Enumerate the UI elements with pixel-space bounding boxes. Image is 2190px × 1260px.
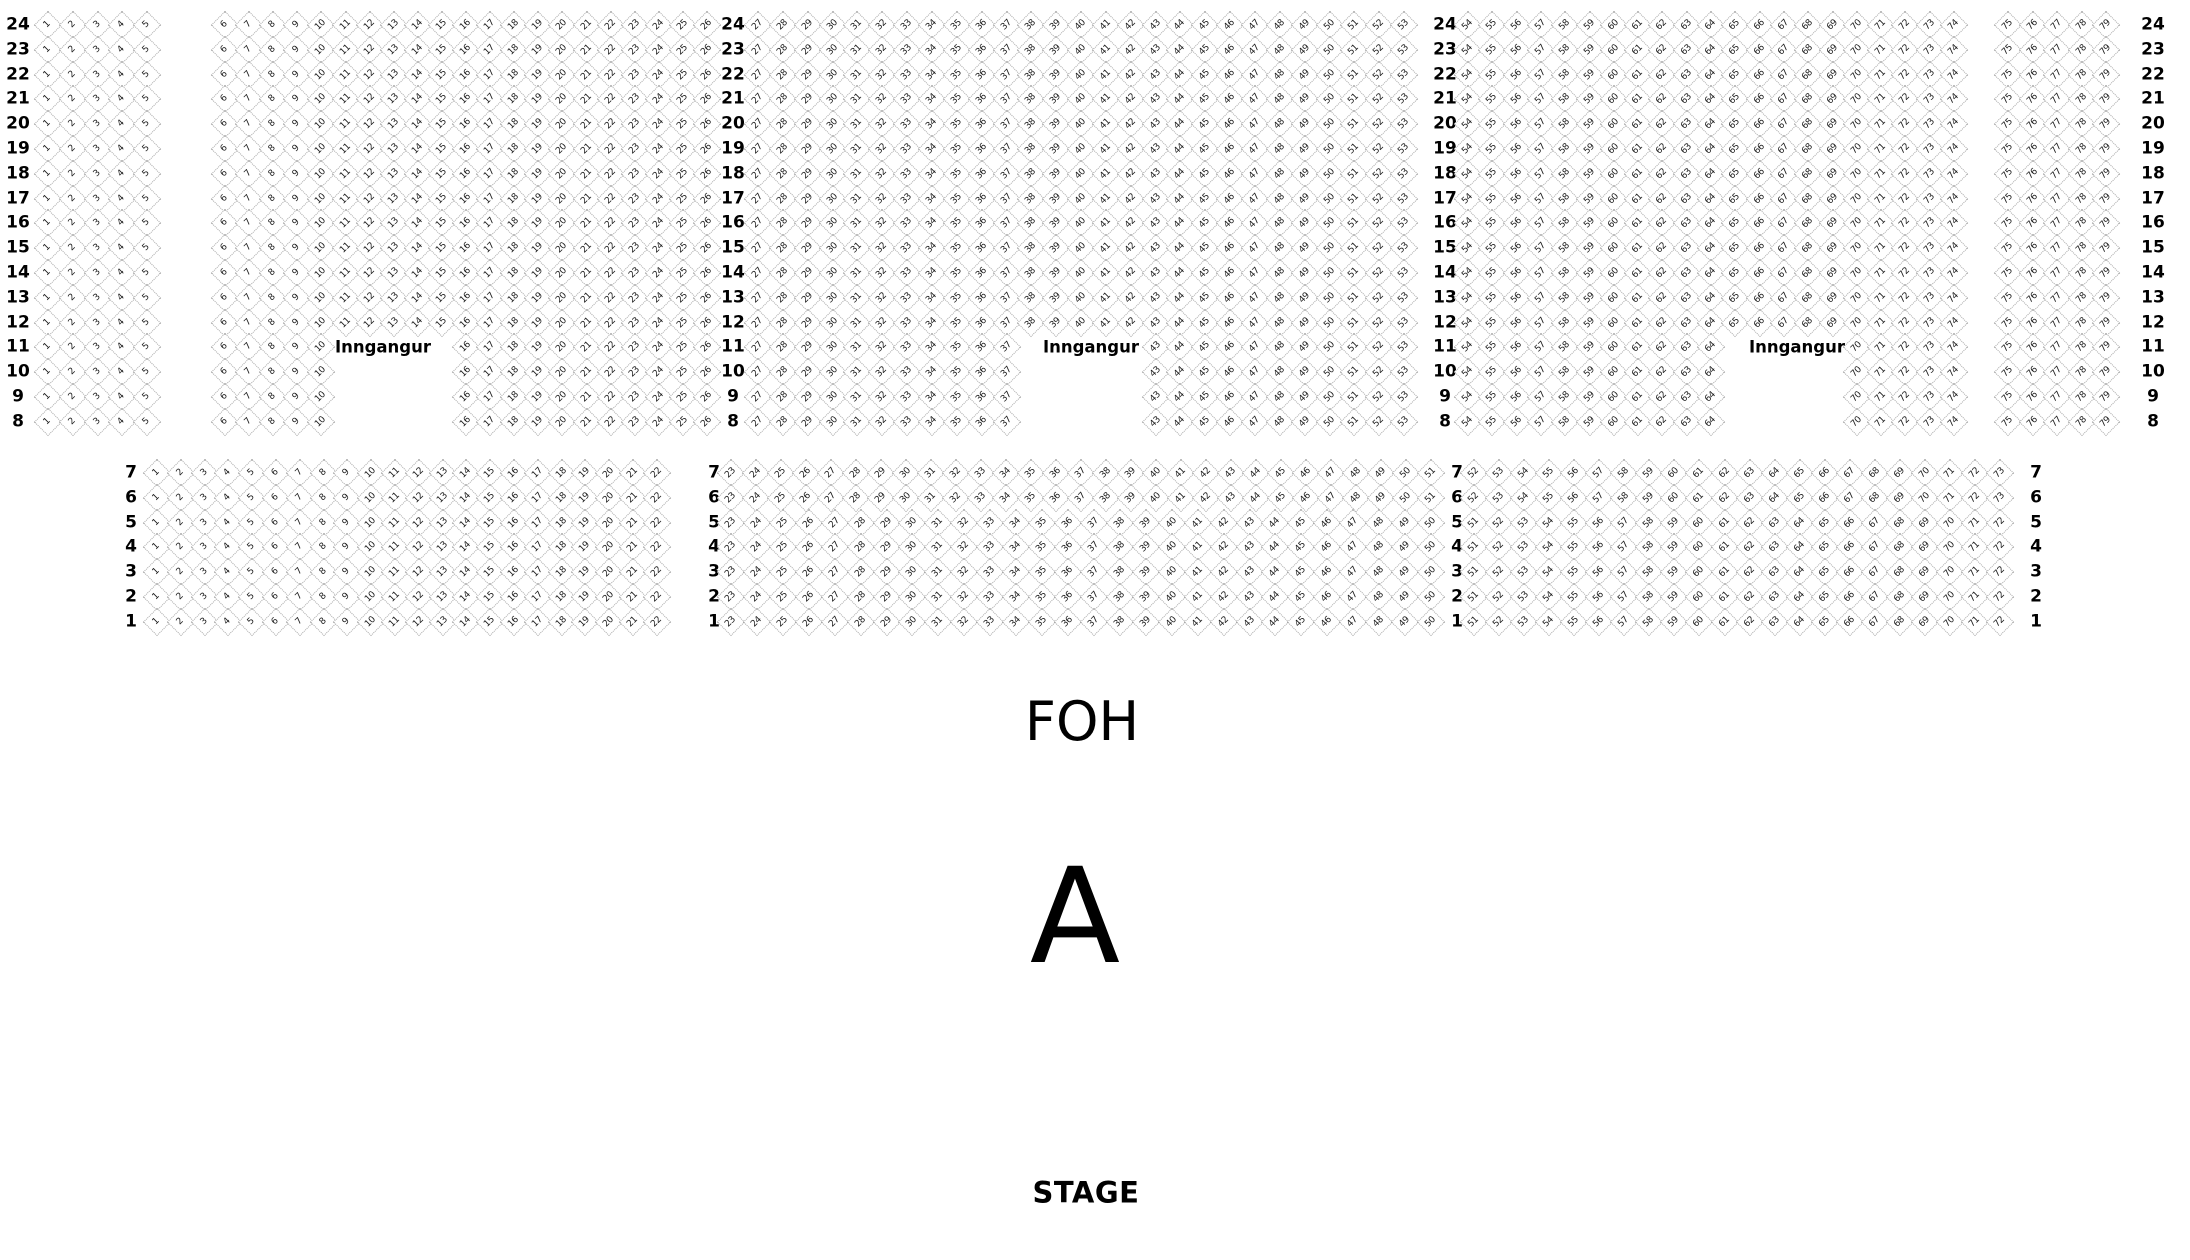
seat-number: 59 bbox=[1583, 415, 1597, 429]
seat-number: 42 bbox=[1217, 615, 1231, 629]
seat[interactable]: 22 bbox=[643, 608, 671, 636]
seat-number: 79 bbox=[2099, 266, 2113, 280]
seat[interactable]: 79 bbox=[2092, 160, 2120, 188]
seat-number: 11 bbox=[388, 516, 402, 530]
seat-number: 72 bbox=[1993, 590, 2007, 604]
seat[interactable]: 79 bbox=[2092, 408, 2120, 436]
seat-number: 72 bbox=[1899, 390, 1913, 404]
seat-number: 70 bbox=[1850, 167, 1864, 181]
seat[interactable]: 32 bbox=[950, 608, 978, 636]
seat[interactable]: 26 bbox=[693, 408, 721, 436]
seat-number: 28 bbox=[854, 516, 868, 530]
seat[interactable]: 37 bbox=[1080, 608, 1108, 636]
seat[interactable]: 32 bbox=[950, 583, 978, 611]
seat[interactable]: 31 bbox=[924, 608, 952, 636]
seat[interactable]: 51 bbox=[1417, 484, 1445, 512]
seat[interactable]: 29 bbox=[872, 608, 900, 636]
seat[interactable]: 26 bbox=[693, 160, 721, 188]
seat-number: 46 bbox=[1223, 43, 1237, 57]
seat[interactable]: 44 bbox=[1261, 583, 1289, 611]
seat[interactable]: 53 bbox=[1390, 160, 1418, 188]
seat-number: 35 bbox=[950, 415, 964, 429]
seat-number: 21 bbox=[580, 93, 594, 107]
seat-number: 36 bbox=[975, 18, 989, 32]
seat-number: 5 bbox=[142, 45, 152, 55]
seat[interactable]: 5 bbox=[133, 160, 161, 188]
seat-number: 57 bbox=[1534, 68, 1548, 82]
seat-number: 53 bbox=[1397, 266, 1411, 280]
seat-number: 31 bbox=[851, 43, 865, 57]
seat-number: 31 bbox=[851, 390, 865, 404]
seat-number: 51 bbox=[1467, 590, 1481, 604]
seat-number: 15 bbox=[483, 516, 497, 530]
seat-number: 46 bbox=[1320, 516, 1334, 530]
seat-number: 46 bbox=[1320, 541, 1334, 555]
seat-number: 42 bbox=[1124, 241, 1138, 255]
seat-number: 28 bbox=[776, 167, 790, 181]
seat-number: 63 bbox=[1680, 291, 1694, 305]
seat-number: 9 bbox=[292, 20, 302, 30]
seat[interactable]: 60 bbox=[1685, 533, 1713, 561]
seat[interactable]: 44 bbox=[1261, 558, 1289, 586]
seat[interactable]: 72 bbox=[1986, 608, 2014, 636]
seat-number: 72 bbox=[1993, 615, 2007, 629]
seat-number: 50 bbox=[1323, 390, 1337, 404]
seat-number: 18 bbox=[507, 142, 521, 156]
seat[interactable]: 41 bbox=[1184, 608, 1212, 636]
seat-number: 3 bbox=[92, 268, 102, 278]
row-label: 19 bbox=[721, 141, 745, 158]
row-label: 22 bbox=[2141, 66, 2165, 83]
seat-number: 45 bbox=[1198, 117, 1212, 131]
seat-number: 47 bbox=[1324, 491, 1338, 505]
seat[interactable]: 53 bbox=[1390, 11, 1418, 39]
seat-number: 21 bbox=[626, 466, 640, 480]
seat-number: 67 bbox=[1777, 192, 1791, 206]
seat[interactable]: 60 bbox=[1685, 558, 1713, 586]
seat-number: 63 bbox=[1680, 18, 1694, 32]
seat-number: 27 bbox=[751, 142, 765, 156]
seat[interactable]: 49 bbox=[1291, 408, 1319, 436]
seat-number: 45 bbox=[1198, 217, 1212, 231]
seat-number: 61 bbox=[1631, 316, 1645, 330]
seat-number: 69 bbox=[1918, 565, 1932, 579]
seat-number: 32 bbox=[875, 43, 889, 57]
seat[interactable]: 47 bbox=[1339, 583, 1367, 611]
seat-number: 50 bbox=[1424, 516, 1438, 530]
seat[interactable]: 5 bbox=[133, 408, 161, 436]
seat-number: 41 bbox=[1191, 541, 1205, 555]
seat-number: 1 bbox=[43, 367, 53, 377]
seat-number: 33 bbox=[974, 466, 988, 480]
seat[interactable]: 2 bbox=[59, 408, 87, 436]
seat-number: 56 bbox=[1510, 291, 1524, 305]
seat-number: 17 bbox=[483, 341, 497, 355]
seat-number: 25 bbox=[774, 491, 788, 505]
seat-number: 6 bbox=[220, 392, 230, 402]
seat-number: 54 bbox=[1542, 541, 1556, 555]
seat[interactable]: 43 bbox=[1235, 608, 1263, 636]
seat-number: 6 bbox=[220, 119, 230, 129]
seat-number: 51 bbox=[1467, 516, 1481, 530]
seat-number: 4 bbox=[117, 45, 127, 55]
seat[interactable]: 29 bbox=[794, 408, 822, 436]
seat[interactable]: 10 bbox=[307, 408, 335, 436]
seat-number: 62 bbox=[1656, 266, 1670, 280]
seat-number: 44 bbox=[1174, 291, 1188, 305]
seat[interactable]: 45 bbox=[1287, 583, 1315, 611]
seat[interactable]: 61 bbox=[1685, 484, 1713, 512]
seat-number: 31 bbox=[924, 466, 938, 480]
seat-number: 9 bbox=[292, 417, 302, 427]
seat[interactable]: 30 bbox=[898, 583, 926, 611]
seat[interactable]: 27 bbox=[821, 608, 849, 636]
seat-number: 53 bbox=[1397, 68, 1411, 82]
seat-number: 23 bbox=[628, 241, 642, 255]
seat-number: 74 bbox=[1947, 390, 1961, 404]
seat-number: 5 bbox=[247, 567, 257, 577]
seat[interactable]: 53 bbox=[1390, 284, 1418, 312]
seat-number: 15 bbox=[435, 167, 449, 181]
seat[interactable]: 64 bbox=[1697, 408, 1725, 436]
seat[interactable]: 35 bbox=[1028, 583, 1056, 611]
seat-number: 18 bbox=[555, 491, 569, 505]
seat-number: 55 bbox=[1485, 18, 1499, 32]
seat-number: 27 bbox=[828, 516, 842, 530]
seat-number: 51 bbox=[1348, 18, 1362, 32]
seat-number: 74 bbox=[1947, 18, 1961, 32]
seat-number: 76 bbox=[2026, 291, 2040, 305]
seat-number: 11 bbox=[339, 266, 353, 280]
seat[interactable]: 53 bbox=[1390, 36, 1418, 64]
seat-number: 11 bbox=[339, 291, 353, 305]
seat-number: 43 bbox=[1243, 565, 1257, 579]
seat[interactable]: 42 bbox=[1209, 608, 1237, 636]
seat-number: 13 bbox=[436, 466, 450, 480]
seat-number: 74 bbox=[1947, 167, 1961, 181]
seat-number: 7 bbox=[295, 468, 305, 478]
seat[interactable]: 48 bbox=[1365, 608, 1393, 636]
seat-number: 21 bbox=[580, 192, 594, 206]
seat[interactable]: 53 bbox=[1390, 135, 1418, 163]
seat-number: 73 bbox=[1923, 43, 1937, 57]
seat[interactable]: 64 bbox=[1785, 608, 1813, 636]
seat[interactable]: 31 bbox=[924, 558, 952, 586]
seat[interactable]: 47 bbox=[1339, 608, 1367, 636]
seat-number: 57 bbox=[1617, 516, 1631, 530]
seat[interactable]: 23 bbox=[717, 608, 745, 636]
seat[interactable]: 39 bbox=[1132, 608, 1160, 636]
seat-number: 11 bbox=[339, 217, 353, 231]
seat[interactable]: 66 bbox=[1836, 608, 1864, 636]
seat[interactable]: 60 bbox=[1685, 608, 1713, 636]
seat[interactable]: 33 bbox=[976, 583, 1004, 611]
seat-number: 30 bbox=[826, 18, 840, 32]
row-label: 17 bbox=[2141, 190, 2165, 207]
seat-number: 50 bbox=[1323, 266, 1337, 280]
seat-number: 50 bbox=[1399, 491, 1413, 505]
seat-number: 68 bbox=[1868, 491, 1882, 505]
seat-number: 66 bbox=[1753, 217, 1767, 231]
seat-number: 34 bbox=[1009, 615, 1023, 629]
seat-number: 60 bbox=[1607, 316, 1621, 330]
seat-number: 64 bbox=[1704, 316, 1718, 330]
seat-number: 51 bbox=[1348, 390, 1362, 404]
seat-number: 16 bbox=[459, 241, 473, 255]
row-label: 20 bbox=[721, 116, 745, 133]
seat[interactable]: 49 bbox=[1391, 583, 1419, 611]
seat-number: 46 bbox=[1223, 167, 1237, 181]
seat-number: 68 bbox=[1868, 466, 1882, 480]
seat[interactable]: 26 bbox=[795, 608, 823, 636]
seat-number: 64 bbox=[1704, 217, 1718, 231]
seat-number: 36 bbox=[975, 415, 989, 429]
seat-number: 2 bbox=[68, 268, 78, 278]
seat[interactable]: 36 bbox=[967, 408, 995, 436]
seat-number: 16 bbox=[459, 291, 473, 305]
seat[interactable]: 34 bbox=[1002, 608, 1030, 636]
seat[interactable]: 65 bbox=[1811, 608, 1839, 636]
seat-number: 38 bbox=[1024, 117, 1038, 131]
seat[interactable]: 25 bbox=[769, 608, 797, 636]
seat-number: 68 bbox=[1801, 217, 1815, 231]
seat-number: 13 bbox=[387, 316, 401, 330]
seat[interactable]: 24 bbox=[743, 608, 771, 636]
seat[interactable]: 74 bbox=[1940, 36, 1968, 64]
seat-number: 68 bbox=[1893, 615, 1907, 629]
seat[interactable]: 10 bbox=[307, 383, 335, 411]
seat-number: 37 bbox=[1000, 415, 1014, 429]
seat[interactable]: 46 bbox=[1313, 608, 1341, 636]
seat-number: 15 bbox=[435, 266, 449, 280]
seat[interactable]: 33 bbox=[976, 558, 1004, 586]
seat-number: 66 bbox=[1753, 68, 1767, 82]
seat-number: 9 bbox=[292, 94, 302, 104]
seat-number: 34 bbox=[925, 217, 939, 231]
seat-number: 16 bbox=[459, 415, 473, 429]
seat-number: 12 bbox=[363, 93, 377, 107]
seat[interactable]: 63 bbox=[1760, 608, 1788, 636]
seat-number: 52 bbox=[1492, 541, 1506, 555]
seat-number: 37 bbox=[1000, 142, 1014, 156]
seat-number: 47 bbox=[1248, 18, 1262, 32]
seat-number: 28 bbox=[854, 565, 868, 579]
seat-number: 10 bbox=[364, 565, 378, 579]
seat[interactable]: 44 bbox=[1261, 608, 1289, 636]
seat-number: 63 bbox=[1680, 93, 1694, 107]
seat-number: 43 bbox=[1149, 18, 1163, 32]
seat-number: 29 bbox=[801, 217, 815, 231]
seat[interactable]: 45 bbox=[1287, 608, 1315, 636]
seat[interactable]: 40 bbox=[1158, 608, 1186, 636]
seat-number: 4 bbox=[223, 617, 233, 627]
seat[interactable]: 46 bbox=[1313, 558, 1341, 586]
seat-number: 77 bbox=[2050, 117, 2064, 131]
seat-number: 54 bbox=[1461, 266, 1475, 280]
seat[interactable]: 26 bbox=[693, 284, 721, 312]
seat-number: 4 bbox=[117, 392, 127, 402]
seat-number: 52 bbox=[1492, 516, 1506, 530]
seat-number: 36 bbox=[1049, 491, 1063, 505]
seat[interactable]: 72 bbox=[1986, 583, 2014, 611]
seat-number: 38 bbox=[1024, 142, 1038, 156]
seat-number: 63 bbox=[1768, 516, 1782, 530]
seat-number: 78 bbox=[2075, 167, 2089, 181]
seat-number: 12 bbox=[363, 117, 377, 131]
seat[interactable]: 73 bbox=[1986, 459, 2014, 487]
row-label: 1 bbox=[125, 613, 137, 630]
seat[interactable]: 37 bbox=[992, 408, 1020, 436]
seat-number: 4 bbox=[117, 243, 127, 253]
seat-number: 18 bbox=[507, 291, 521, 305]
seat-number: 67 bbox=[1868, 541, 1882, 555]
seat-number: 26 bbox=[802, 541, 816, 555]
seat[interactable]: 35 bbox=[1028, 608, 1056, 636]
seat[interactable]: 46 bbox=[1313, 583, 1341, 611]
seat[interactable]: 79 bbox=[2092, 36, 2120, 64]
seat-number: 26 bbox=[700, 341, 714, 355]
seat-number: 76 bbox=[2026, 68, 2040, 82]
seat-number: 2 bbox=[68, 218, 78, 228]
seat[interactable]: 61 bbox=[1710, 608, 1738, 636]
seat-number: 47 bbox=[1248, 93, 1262, 107]
seat[interactable]: 48 bbox=[1365, 583, 1393, 611]
seat[interactable]: 44 bbox=[1261, 533, 1289, 561]
seat-number: 49 bbox=[1398, 541, 1412, 555]
seat-number: 29 bbox=[801, 341, 815, 355]
seat[interactable]: 26 bbox=[693, 36, 721, 64]
seat[interactable]: 49 bbox=[1391, 608, 1419, 636]
seat-number: 29 bbox=[880, 541, 894, 555]
seat[interactable]: 38 bbox=[1106, 608, 1134, 636]
seat-number: 46 bbox=[1223, 241, 1237, 255]
seat[interactable]: 73 bbox=[1986, 484, 2014, 512]
seat[interactable]: 32 bbox=[950, 558, 978, 586]
seat-number: 1 bbox=[152, 617, 162, 627]
seat-number: 8 bbox=[319, 567, 329, 577]
seat-number: 68 bbox=[1893, 516, 1907, 530]
seat-number: 1 bbox=[152, 518, 162, 528]
seat-number: 3 bbox=[200, 617, 210, 627]
seat[interactable]: 45 bbox=[1287, 558, 1315, 586]
seat[interactable]: 30 bbox=[898, 558, 926, 586]
seat-number: 51 bbox=[1348, 192, 1362, 206]
seat[interactable]: 33 bbox=[976, 608, 1004, 636]
seat-number: 71 bbox=[1874, 117, 1888, 131]
seat-number: 62 bbox=[1656, 341, 1670, 355]
seat-number: 23 bbox=[628, 390, 642, 404]
seat-number: 59 bbox=[1583, 18, 1597, 32]
seat[interactable]: 53 bbox=[1390, 408, 1418, 436]
seat[interactable]: 50 bbox=[1417, 608, 1445, 636]
seat-number: 54 bbox=[1517, 491, 1531, 505]
seat-number: 73 bbox=[1923, 241, 1937, 255]
seat-number: 14 bbox=[460, 516, 474, 530]
seat-number: 30 bbox=[826, 192, 840, 206]
seat-number: 58 bbox=[1558, 241, 1572, 255]
seat-number: 54 bbox=[1461, 68, 1475, 82]
seat-number: 33 bbox=[974, 491, 988, 505]
seat-number: 20 bbox=[556, 217, 570, 231]
seat-number: 43 bbox=[1224, 466, 1238, 480]
seat-number: 19 bbox=[531, 266, 545, 280]
row-label: 20 bbox=[2141, 116, 2165, 133]
seat[interactable]: 5 bbox=[133, 284, 161, 312]
seat-number: 70 bbox=[1850, 341, 1864, 355]
seat-number: 23 bbox=[724, 541, 738, 555]
seat-number: 41 bbox=[1191, 565, 1205, 579]
seat-number: 46 bbox=[1223, 341, 1237, 355]
seat-number: 38 bbox=[1024, 192, 1038, 206]
seat-number: 44 bbox=[1174, 43, 1188, 57]
seat-number: 24 bbox=[652, 43, 666, 57]
seat-number: 42 bbox=[1124, 117, 1138, 131]
row-label: 18 bbox=[721, 165, 745, 182]
seat-number: 40 bbox=[1074, 68, 1088, 82]
seat-number: 50 bbox=[1424, 615, 1438, 629]
seat[interactable]: 10 bbox=[307, 358, 335, 386]
seat-number: 9 bbox=[342, 617, 352, 627]
row-label: 10 bbox=[721, 364, 745, 381]
seat[interactable]: 36 bbox=[1054, 608, 1082, 636]
seat[interactable]: 53 bbox=[1390, 383, 1418, 411]
seat-number: 59 bbox=[1583, 390, 1597, 404]
seat[interactable]: 30 bbox=[898, 608, 926, 636]
seat[interactable]: 30 bbox=[898, 533, 926, 561]
seat-number: 51 bbox=[1424, 466, 1438, 480]
seat-number: 52 bbox=[1372, 93, 1386, 107]
seat-number: 54 bbox=[1461, 291, 1475, 305]
seat[interactable]: 62 bbox=[1735, 608, 1763, 636]
seat-number: 64 bbox=[1704, 291, 1718, 305]
seat[interactable]: 28 bbox=[846, 608, 874, 636]
seat-number: 76 bbox=[2026, 241, 2040, 255]
seat[interactable]: 53 bbox=[1390, 259, 1418, 287]
seat-number: 15 bbox=[483, 491, 497, 505]
seat-number: 41 bbox=[1099, 142, 1113, 156]
seat[interactable]: 60 bbox=[1685, 583, 1713, 611]
seat[interactable]: 31 bbox=[924, 583, 952, 611]
seat-number: 46 bbox=[1223, 217, 1237, 231]
seat-number: 33 bbox=[900, 192, 914, 206]
row-label: 9 bbox=[2147, 389, 2159, 406]
seat-number: 5 bbox=[247, 493, 257, 503]
seat-number: 68 bbox=[1801, 68, 1815, 82]
seat-number: 45 bbox=[1274, 491, 1288, 505]
seat-number: 69 bbox=[1826, 18, 1840, 32]
seat-number: 77 bbox=[2050, 341, 2064, 355]
seat-number: 9 bbox=[292, 268, 302, 278]
seat[interactable]: 61 bbox=[1685, 459, 1713, 487]
seat[interactable]: 74 bbox=[1940, 160, 1968, 188]
seat-number: 4 bbox=[117, 417, 127, 427]
seat-number: 21 bbox=[580, 68, 594, 82]
seat[interactable]: 74 bbox=[1940, 408, 1968, 436]
seat-number: 52 bbox=[1372, 217, 1386, 231]
seat[interactable]: 79 bbox=[2092, 284, 2120, 312]
seat-number: 70 bbox=[1850, 316, 1864, 330]
seat-number: 3 bbox=[92, 392, 102, 402]
seat-number: 25 bbox=[676, 365, 690, 379]
seat[interactable]: 34 bbox=[1002, 583, 1030, 611]
seat-number: 26 bbox=[802, 590, 816, 604]
seat[interactable]: 5 bbox=[133, 36, 161, 64]
seat[interactable]: 74 bbox=[1940, 284, 1968, 312]
seat-number: 9 bbox=[292, 169, 302, 179]
seat-number: 62 bbox=[1656, 117, 1670, 131]
seat-number: 25 bbox=[676, 341, 690, 355]
seat-number: 5 bbox=[142, 169, 152, 179]
